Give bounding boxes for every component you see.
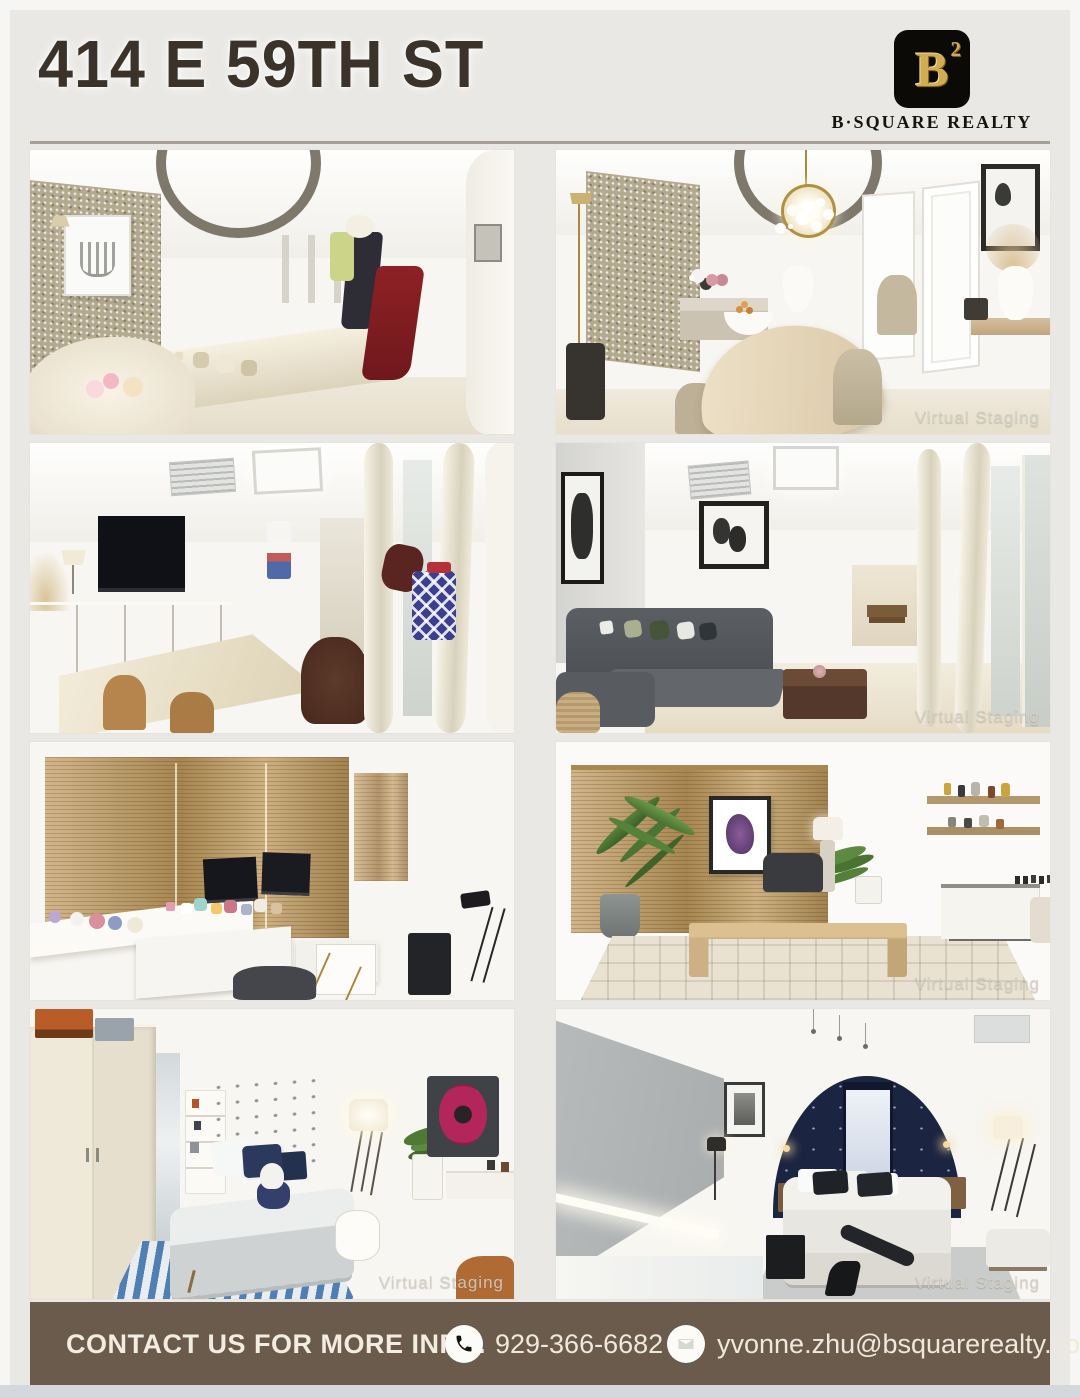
- monitor: [262, 852, 312, 895]
- virtual-staging-watermark: Virtual Staging: [915, 1273, 1040, 1293]
- wood-desk: [689, 923, 906, 977]
- email-contact[interactable]: yvonne.zhu@bsquarerealty.com: [667, 1325, 1080, 1363]
- floor-lamp-shade: [707, 1137, 727, 1152]
- tripod-lamp-legs: [361, 1128, 374, 1191]
- desk-clutter: [166, 902, 175, 911]
- wall-art: [64, 215, 131, 296]
- contact-cta: CONTACT US FOR MORE INFO.: [66, 1329, 486, 1360]
- contact-bar: CONTACT US FOR MORE INFO. 929-366-6682 y…: [30, 1302, 1050, 1386]
- bsquare-logo-icon: B 2: [894, 30, 970, 108]
- logo-letter: B: [915, 44, 948, 94]
- photo-staged-office: Virtual Staging: [556, 742, 1050, 1000]
- bottom-strip: [0, 1385, 1080, 1398]
- shelf-decor: [944, 783, 951, 795]
- curved-wall: [466, 150, 514, 434]
- tripod: [482, 908, 505, 983]
- camera: [460, 890, 491, 909]
- sideboard: [941, 884, 1040, 940]
- console-decor: [487, 1160, 495, 1170]
- photo-tv-den: [30, 443, 514, 733]
- framed-art: [699, 501, 768, 569]
- leather-chair: [301, 637, 369, 724]
- floor-lamp: [578, 201, 580, 343]
- floating-shelf: [927, 827, 1041, 835]
- tripod-lamp-shade: [993, 1116, 1023, 1139]
- hat: [345, 215, 374, 238]
- photo-dining-room: Virtual Staging: [556, 150, 1050, 434]
- storage-box-gray: [95, 1018, 134, 1041]
- black-side-cube: [766, 1235, 806, 1279]
- pampas-grass: [986, 224, 1040, 272]
- tv: [98, 516, 185, 593]
- picture-frame: [474, 224, 502, 262]
- office-chair: [233, 966, 315, 1000]
- plush-toys: [103, 373, 119, 389]
- shelf-decor: [948, 817, 956, 827]
- logo-exponent: 2: [951, 37, 962, 62]
- open-door: [922, 180, 980, 373]
- virtual-staging-watermark: Virtual Staging: [379, 1273, 504, 1293]
- daybed-bench: [986, 1229, 1050, 1267]
- dining-chair: [833, 349, 882, 426]
- office-chair: [763, 853, 822, 892]
- rattan-side-table: [556, 692, 600, 733]
- air-vent: [974, 1015, 1030, 1043]
- speaker: [566, 343, 606, 420]
- patterned-bag: [412, 571, 456, 641]
- brand-name: B·SQUARE REALTY: [818, 112, 1046, 133]
- round-side-table: [335, 1210, 381, 1261]
- hanging-garment: [330, 232, 354, 280]
- monitor: [203, 857, 258, 904]
- bag-strap: [427, 562, 451, 574]
- chess-set: [1015, 876, 1020, 884]
- page-title: 414 E 59TH ST: [38, 26, 484, 103]
- photo-primary-bedroom: Virtual Staging: [556, 1009, 1050, 1299]
- small-flag: [267, 521, 291, 579]
- skylight: [252, 447, 323, 494]
- photo-sectional-living-room: Virtual Staging: [556, 443, 1050, 733]
- decor-sphere: [813, 665, 826, 678]
- table-lamp-pole: [72, 565, 74, 594]
- flower-vase: [783, 266, 813, 311]
- plant-pot-white: [855, 876, 882, 904]
- phone-icon: [445, 1325, 483, 1363]
- plant-pot: [412, 1154, 443, 1200]
- white-flowers: [788, 224, 793, 229]
- photo-home-office: [30, 742, 514, 1000]
- white-floor: [556, 1256, 763, 1300]
- mosaic-accent-wall: [586, 171, 700, 372]
- tripod-lamp-legs: [1004, 1137, 1024, 1211]
- pendant-lights: [813, 1009, 814, 1031]
- phone-number: 929-366-6682: [495, 1329, 663, 1360]
- floor-lamp: [59, 224, 61, 321]
- photo-bedroom-wardrobe: Virtual Staging: [30, 1009, 514, 1299]
- virtual-staging-watermark: Virtual Staging: [915, 974, 1040, 994]
- white-vase: [998, 266, 1033, 320]
- wavy-pillar: [917, 449, 942, 727]
- ac-vent: [688, 461, 752, 500]
- coffee-table: [783, 669, 867, 718]
- envelope-icon: [667, 1325, 705, 1363]
- flyer-page: 414 E 59TH ST B 2 B·SQUARE REALTY: [0, 0, 1080, 1398]
- wardrobe-handles: [86, 1148, 89, 1162]
- shelf-decor: [192, 1099, 199, 1108]
- skylight: [773, 446, 838, 490]
- floor-lamp-shade: [570, 193, 592, 204]
- blind-cords: [175, 763, 177, 928]
- photo-living-room-chaise: [30, 150, 514, 434]
- pendant-light: [781, 184, 836, 238]
- glass-door: [1022, 455, 1050, 728]
- photo-gallery: Virtual Staging: [30, 141, 1050, 1299]
- table-lamp-shade: [813, 817, 843, 840]
- plush-toys: [49, 911, 61, 923]
- console-table: [971, 318, 1050, 335]
- woven-blinds-small: [354, 773, 407, 881]
- table-lamp: [61, 550, 85, 565]
- virtual-staging-watermark: Virtual Staging: [915, 707, 1040, 727]
- wall-art: [561, 472, 604, 584]
- framed-art: [724, 1082, 765, 1137]
- phone-contact[interactable]: 929-366-6682: [445, 1325, 663, 1363]
- console-ledge: [446, 1171, 514, 1199]
- floating-shelf: [927, 796, 1041, 804]
- floor-lamp-pole: [714, 1151, 716, 1200]
- wood-chair: [103, 675, 147, 730]
- ac-vent: [169, 458, 236, 496]
- tripod-lamp-shade: [349, 1099, 388, 1131]
- glass-panel: [991, 466, 1021, 715]
- framed-art: [709, 796, 771, 874]
- pc-tower: [408, 933, 452, 995]
- virtual-staging-watermark: Virtual Staging: [915, 408, 1040, 428]
- bed: [783, 1177, 951, 1284]
- console-decor: [964, 298, 989, 321]
- throw-pillows: [600, 621, 615, 636]
- dark-pillows: [812, 1170, 848, 1196]
- wood-chair: [170, 692, 214, 733]
- curved-wall: [485, 443, 514, 733]
- email-address: yvonne.zhu@bsquarerealty.com: [717, 1329, 1080, 1360]
- dining-table-small: [867, 605, 907, 617]
- pendant-bulbs: [811, 1029, 816, 1034]
- side-chair: [1030, 897, 1050, 943]
- dining-chair: [877, 275, 917, 335]
- plant-pot: [600, 894, 640, 938]
- drawer-unit: [316, 944, 376, 995]
- plush-bunny: [260, 1163, 284, 1189]
- storage-box-orange: [35, 1009, 93, 1038]
- center-mirror: [843, 1082, 893, 1186]
